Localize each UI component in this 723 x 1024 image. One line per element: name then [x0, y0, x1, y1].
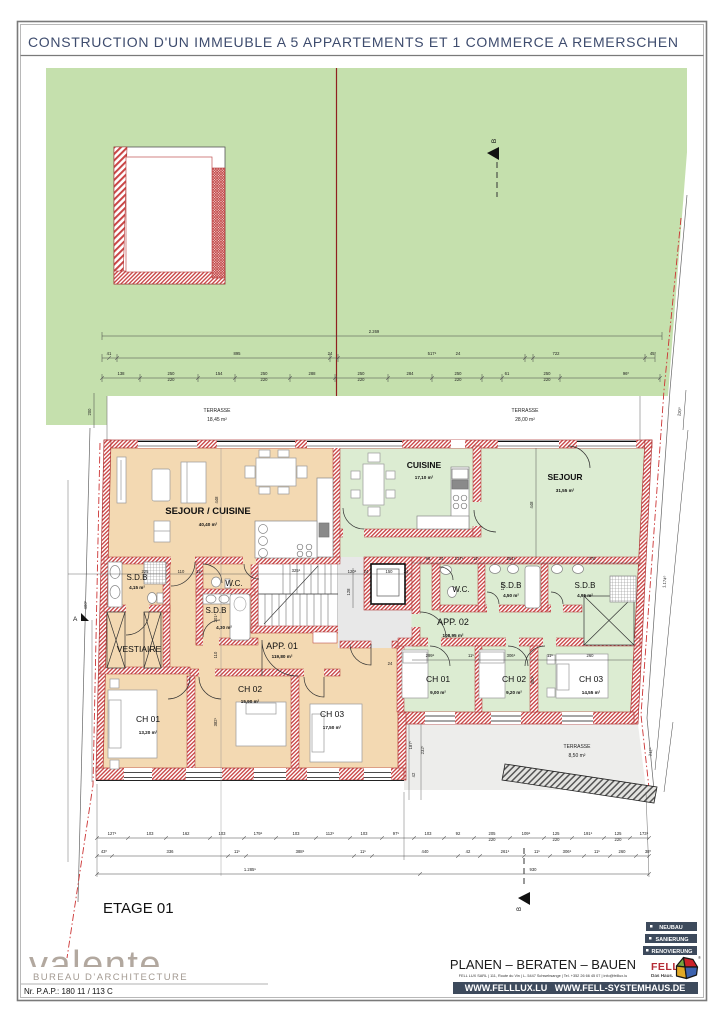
svg-text:220: 220	[544, 377, 552, 382]
svg-text:CH 01: CH 01	[426, 674, 450, 684]
svg-text:WWW.FELLLUX.LU WWW.FELL-SYST: WWW.FELLLUX.LU WWW.FELL-SYSTEMHAUS.DE	[465, 983, 685, 993]
svg-text:APP. 02: APP. 02	[437, 617, 469, 627]
svg-text:288: 288	[309, 371, 317, 376]
svg-text:TERRASSE: TERRASSE	[512, 408, 540, 414]
svg-text:306⁵: 306⁵	[507, 653, 516, 658]
svg-text:11⁵: 11⁵	[196, 569, 202, 574]
svg-text:9,20 m²: 9,20 m²	[506, 690, 522, 695]
svg-text:173⁵: 173⁵	[640, 831, 649, 836]
svg-text:220: 220	[358, 377, 366, 382]
svg-text:24: 24	[456, 351, 461, 356]
svg-text:45⁰: 45⁰	[650, 351, 657, 356]
svg-text:CH 03: CH 03	[579, 674, 603, 684]
svg-text:103: 103	[293, 831, 301, 836]
svg-text:220: 220	[489, 837, 497, 842]
svg-text:15,90 m²: 15,90 m²	[241, 699, 260, 704]
svg-text:232⁰: 232⁰	[420, 745, 425, 754]
svg-text:PLANEN – BERATEN – BAUEN: PLANEN – BERATEN – BAUEN	[450, 957, 636, 972]
svg-text:110: 110	[178, 569, 185, 574]
svg-text:28,00 m²: 28,00 m²	[515, 417, 535, 423]
svg-text:150: 150	[386, 569, 394, 574]
svg-text:TERRASSE: TERRASSE	[204, 408, 232, 414]
svg-text:CH 01: CH 01	[136, 714, 160, 724]
svg-text:722: 722	[553, 351, 561, 356]
svg-text:108,95 m²: 108,95 m²	[443, 633, 464, 638]
svg-text:4,30 m²: 4,30 m²	[216, 625, 232, 630]
svg-text:11⁵: 11⁵	[594, 849, 600, 854]
svg-text:24: 24	[388, 661, 393, 666]
svg-text:250: 250	[455, 371, 463, 376]
svg-text:103: 103	[425, 831, 433, 836]
svg-text:VESTIAIRE: VESTIAIRE	[117, 644, 162, 654]
svg-text:187⁰: 187⁰	[408, 740, 413, 749]
svg-text:191⁵: 191⁵	[584, 831, 593, 836]
svg-text:CUISINE: CUISINE	[407, 460, 442, 470]
svg-text:138: 138	[118, 371, 126, 376]
svg-text:A: A	[73, 616, 78, 623]
svg-text:440: 440	[422, 849, 430, 854]
svg-text:43⁰: 43⁰	[101, 849, 108, 854]
svg-text:FELL LUX SARL | 111, Route du: FELL LUX SARL | 111, Route du Vin | L- 5…	[459, 974, 627, 978]
svg-text:CONSTRUCTION D'UN IMMEUBLE A 5: CONSTRUCTION D'UN IMMEUBLE A 5 APPARTEME…	[28, 34, 679, 50]
svg-text:4,50 m²: 4,50 m²	[503, 593, 519, 598]
svg-text:448: 448	[529, 501, 534, 509]
svg-text:SEJOUR: SEJOUR	[548, 472, 583, 482]
svg-text:388⁵: 388⁵	[296, 849, 305, 854]
svg-text:B: B	[491, 139, 498, 143]
svg-text:31,55 m²: 31,55 m²	[556, 488, 575, 493]
svg-text:325⁵: 325⁵	[292, 568, 301, 573]
svg-text:300⁵: 300⁵	[530, 675, 535, 684]
svg-text:24: 24	[364, 569, 369, 574]
svg-text:261⁵: 261⁵	[507, 556, 516, 561]
svg-text:173⁰: 173⁰	[500, 581, 505, 590]
svg-text:220: 220	[168, 377, 176, 382]
svg-text:FELL: FELL	[651, 961, 679, 973]
svg-text:128: 128	[346, 588, 351, 596]
svg-text:119,80 m²: 119,80 m²	[272, 654, 293, 659]
svg-text:1.285⁵: 1.285⁵	[244, 867, 256, 872]
svg-text:SANIERUNG: SANIERUNG	[655, 937, 688, 943]
svg-text:400⁰: 400⁰	[83, 600, 88, 609]
svg-text:930: 930	[530, 867, 538, 872]
svg-text:W.C.: W.C.	[452, 585, 469, 594]
svg-text:8,50 m²: 8,50 m²	[569, 753, 586, 759]
svg-text:4,15 m²: 4,15 m²	[129, 585, 145, 590]
svg-text:250: 250	[544, 371, 552, 376]
svg-text:220: 220	[455, 377, 463, 382]
svg-text:SEJOUR / CUISINE: SEJOUR / CUISINE	[165, 506, 251, 517]
svg-text:220: 220	[615, 837, 623, 842]
svg-text:200: 200	[87, 408, 92, 416]
svg-text:284: 284	[407, 371, 415, 376]
svg-text:24: 24	[404, 569, 409, 574]
svg-text:250: 250	[168, 371, 176, 376]
svg-text:250: 250	[358, 371, 366, 376]
svg-text:125: 125	[553, 831, 561, 836]
svg-text:11⁵: 11⁵	[234, 849, 240, 854]
svg-text:61: 61	[505, 371, 510, 376]
svg-text:103: 103	[219, 831, 227, 836]
svg-text:14,55 m²: 14,55 m²	[582, 690, 601, 695]
svg-text:137⁵: 137⁵	[455, 556, 464, 561]
svg-text:®: ®	[698, 955, 701, 960]
svg-text:13,20 m²: 13,20 m²	[139, 730, 158, 735]
svg-text:17,10 m²: 17,10 m²	[415, 475, 434, 480]
svg-text:11⁵: 11⁵	[468, 653, 474, 658]
svg-text:212⁰: 212⁰	[648, 747, 654, 756]
svg-text:BUREAU D’ARCHITECTURE: BUREAU D’ARCHITECTURE	[33, 972, 188, 983]
svg-text:306⁵: 306⁵	[563, 849, 572, 854]
svg-text:42: 42	[411, 772, 416, 777]
svg-text:Nr. P.A.P.: 180 11 / 113 C: Nr. P.A.P.: 180 11 / 113 C	[24, 987, 113, 996]
svg-text:APP. 01: APP. 01	[266, 641, 298, 651]
svg-text:225: 225	[142, 569, 150, 574]
svg-text:TERRASSE: TERRASSE	[564, 744, 592, 750]
svg-text:103: 103	[147, 831, 155, 836]
svg-text:154: 154	[216, 371, 224, 376]
svg-text:299⁵: 299⁵	[426, 653, 435, 658]
svg-text:38⁰: 38⁰	[645, 849, 652, 854]
svg-text:17,50 m²: 17,50 m²	[323, 725, 342, 730]
svg-text:370: 370	[589, 556, 597, 561]
svg-text:18,45 m²: 18,45 m²	[207, 417, 227, 423]
svg-text:11⁵: 11⁵	[547, 653, 553, 658]
svg-text:96: 96	[426, 556, 431, 561]
svg-text:382⁵: 382⁵	[213, 717, 218, 726]
svg-text:24: 24	[439, 556, 444, 561]
svg-text:11⁵: 11⁵	[534, 849, 540, 854]
svg-text:CH 02: CH 02	[502, 674, 526, 684]
svg-text:120⁵: 120⁵	[348, 569, 357, 574]
svg-text:112⁵: 112⁵	[326, 831, 335, 836]
svg-text:CH 03: CH 03	[320, 709, 344, 719]
svg-text:260: 260	[619, 849, 627, 854]
svg-text:92: 92	[456, 831, 461, 836]
svg-text:W.C.: W.C.	[225, 579, 242, 588]
svg-text:125: 125	[615, 831, 623, 836]
svg-text:S.D.B: S.D.B	[127, 573, 148, 582]
svg-text:110: 110	[213, 651, 218, 658]
svg-text:97⁵: 97⁵	[393, 831, 400, 836]
svg-text:162: 162	[183, 831, 191, 836]
svg-text:260: 260	[587, 653, 595, 658]
svg-text:96⁰: 96⁰	[623, 371, 630, 376]
svg-text:220: 220	[553, 837, 561, 842]
svg-text:Das Haus.: Das Haus.	[651, 973, 673, 978]
svg-text:40,40 m²: 40,40 m²	[199, 522, 218, 527]
svg-text:RENOVIERUNG: RENOVIERUNG	[652, 949, 693, 955]
svg-text:24: 24	[328, 351, 333, 356]
svg-text:CH 02: CH 02	[238, 684, 262, 694]
svg-text:895: 895	[234, 351, 242, 356]
svg-text:NEUBAU: NEUBAU	[659, 925, 683, 931]
svg-text:11⁵: 11⁵	[473, 556, 479, 561]
svg-text:201⁵: 201⁵	[213, 613, 218, 622]
svg-text:250: 250	[261, 371, 269, 376]
svg-text:4,95 m²: 4,95 m²	[577, 593, 593, 598]
svg-text:220: 220	[261, 377, 269, 382]
svg-text:B: B	[517, 907, 523, 911]
svg-text:109⁵: 109⁵	[522, 831, 531, 836]
svg-text:103: 103	[361, 831, 369, 836]
svg-text:9,00 m²: 9,00 m²	[430, 690, 446, 695]
svg-text:179⁵: 179⁵	[254, 831, 263, 836]
svg-text:517⁵: 517⁵	[428, 351, 437, 356]
svg-text:11⁵: 11⁵	[360, 849, 366, 854]
svg-text:2.269: 2.269	[369, 329, 380, 334]
svg-text:261⁵: 261⁵	[501, 849, 510, 854]
svg-text:S.D.B: S.D.B	[575, 581, 596, 590]
svg-text:41: 41	[107, 351, 112, 356]
svg-text:336: 336	[167, 849, 175, 854]
svg-text:205: 205	[489, 831, 497, 836]
svg-text:ETAGE 01: ETAGE 01	[103, 900, 174, 917]
svg-text:127⁵: 127⁵	[108, 831, 117, 836]
svg-text:448: 448	[214, 496, 219, 504]
svg-text:42: 42	[466, 849, 471, 854]
